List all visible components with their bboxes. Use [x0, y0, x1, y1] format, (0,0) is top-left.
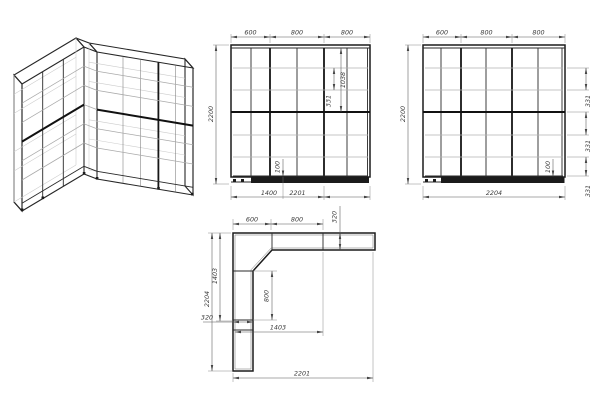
front-height-dim: 2200 [207, 106, 215, 122]
side-top-dim-600: 600 [436, 29, 448, 37]
front-view: 600 800 800 2200 1038 331 100 1400 2201 [207, 29, 370, 201]
side-view: 600 800 800 2200 331 331 331 100 2204 [399, 29, 592, 201]
front-dim-331: 331 [325, 95, 333, 107]
side-dim-331a: 331 [584, 95, 592, 107]
front-top-dim-800b: 800 [341, 29, 353, 37]
plan-bottom-dim-2201: 2201 [294, 370, 310, 378]
drawing-svg: 600 800 800 2200 1038 331 100 1400 2201 [0, 0, 600, 400]
front-bottom-dim-2201: 2201 [289, 189, 305, 197]
front-top-dim-600: 600 [244, 29, 256, 37]
technical-drawing-canvas: 600 800 800 2200 1038 331 100 1400 2201 [0, 0, 600, 400]
plan-depth-dim-320: 320 [331, 211, 339, 223]
side-top-dim-800b: 800 [532, 29, 544, 37]
plan-top-dim-600: 600 [246, 216, 258, 224]
side-dim-331b: 331 [584, 140, 592, 152]
plan-inner-dim-1403: 1403 [270, 324, 286, 332]
side-height-dim: 2200 [399, 106, 407, 122]
front-top-dim-800a: 800 [291, 29, 303, 37]
plan-inner-dim-800: 800 [262, 290, 270, 302]
plan-left-dim-2204: 2204 [203, 291, 211, 307]
side-bottom-dim-2204: 2204 [486, 189, 502, 197]
front-dim-1038: 1038 [339, 72, 347, 88]
side-dim-100: 100 [544, 161, 552, 173]
side-dim-331c: 331 [584, 185, 592, 197]
front-bottom-dim-1400: 1400 [261, 189, 277, 197]
iso-view [14, 38, 194, 211]
plan-view: 600 800 320 1403 2204 320 800 1403 2201 [201, 206, 375, 382]
plan-width-dim-320: 320 [201, 314, 213, 322]
front-dim-100: 100 [274, 161, 282, 173]
side-top-dim-800a: 800 [480, 29, 492, 37]
plan-top-dim-800: 800 [291, 216, 303, 224]
